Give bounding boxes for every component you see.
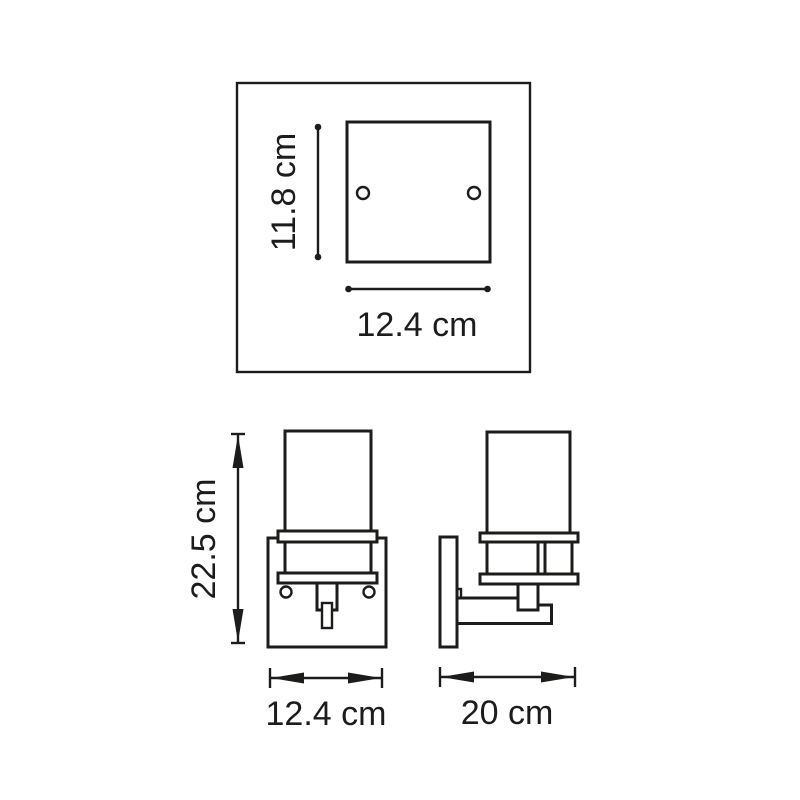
glass-shade-front [285,431,371,573]
shade-lower-side [487,542,538,574]
shade-ring-top-front [278,531,377,542]
screw-hole-left [357,187,369,199]
front-view-width-dimension: 12.4 cm [266,668,387,733]
arrowhead-left [441,672,474,683]
screw-hole-right [468,187,480,199]
shade-ring-bottom-front [278,573,377,583]
arrowhead-down [233,609,244,642]
front-view-width-label: 12.4 cm [266,695,387,733]
pull-switch-knob [322,603,332,628]
top-view-width-label: 12.4 cm [357,306,478,344]
arrowhead-right [348,673,381,684]
switch-stem-side [518,582,538,610]
support-strut-side [545,542,572,574]
wall-plate-side [440,537,457,647]
dimension-endpoint-dot [315,254,322,261]
dimension-drawing: 11.8 cm 12.4 cm 22.5 cm [0,0,800,800]
shade-ring-top-side [480,533,578,542]
front-view-height-dimension: 22.5 cm [185,434,245,643]
wall-sconce-technical-drawing: 11.8 cm 12.4 cm 22.5 cm [0,0,800,800]
arrowhead-left [271,673,304,684]
dimension-endpoint-dot [345,286,352,293]
shade-ring-bottom-side [480,574,578,584]
front-view: 22.5 cm 12.4 cm [185,431,386,733]
side-view: 20 cm [440,432,578,732]
plate-screw-left [281,587,292,598]
front-view-height-label: 22.5 cm [185,479,223,600]
side-view-depth-label: 20 cm [461,694,554,732]
side-view-depth-dimension: 20 cm [440,667,575,732]
arrowhead-right [541,672,574,683]
top-view: 11.8 cm 12.4 cm [237,83,530,372]
top-view-height-label: 11.8 cm [265,133,303,251]
glass-shade-side [487,432,570,533]
plate-screw-right [364,587,375,598]
dimension-endpoint-dot [484,286,491,293]
dimension-endpoint-dot [315,124,322,131]
arrowhead-up [233,435,244,468]
